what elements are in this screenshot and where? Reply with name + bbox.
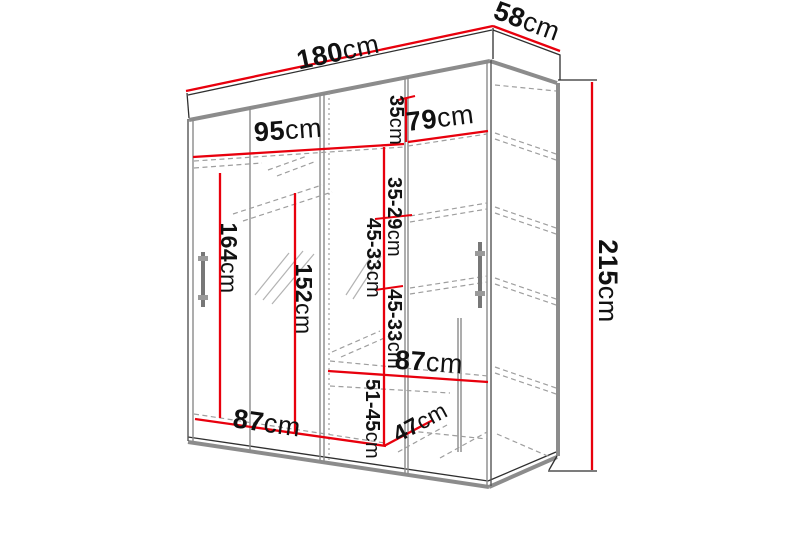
- top-shelf-second-line: [194, 163, 262, 168]
- side-shelf2-b: [495, 213, 556, 234]
- label-middle-shelf-width: 87cm: [394, 345, 464, 380]
- label-shelf-gap-upper: 35-29cm: [383, 177, 405, 257]
- label-mirror-height: 152cm: [291, 263, 317, 334]
- side-shelf3-b: [495, 284, 556, 305]
- label-bottom-left-width: 87cm: [231, 403, 303, 442]
- top-shelf-depth-b: [277, 162, 314, 176]
- right-door-handle: [475, 242, 485, 308]
- shelf4-front-b: [330, 386, 450, 393]
- side-shelf1-a: [495, 133, 556, 154]
- label-total-height: 215cm: [593, 239, 623, 323]
- dim-line-left-width: [193, 144, 404, 157]
- label-shelf-gap-lower: 51-45cm: [361, 379, 383, 459]
- shelf2-front-a: [410, 203, 487, 216]
- front-bottom-edge: [188, 442, 489, 487]
- side-floor: [497, 434, 550, 457]
- label-hanging-height: 164cm: [216, 222, 242, 293]
- shelf2-front-b: [410, 209, 487, 222]
- side-shelf4-a: [495, 367, 556, 388]
- label-total-width: 180cm: [294, 29, 382, 76]
- right-handle-nub-bottom: [475, 291, 485, 296]
- top-shelf-depth-a: [268, 156, 307, 170]
- wardrobe-dimension-diagram: 180cm 58cm 215cm 95cm 79cm 35cm 35-29cm …: [0, 0, 800, 533]
- side-shelf4-b: [495, 373, 556, 394]
- label-interior-depth: 47cm: [388, 397, 451, 447]
- label-right-width: 79cm: [404, 99, 475, 137]
- floor-depth-b: [440, 432, 487, 458]
- label-left-width: 95cm: [253, 113, 323, 148]
- left-door-handle: [198, 252, 208, 307]
- label-shelf-gap-middle-1: 45-33cm: [362, 218, 384, 298]
- product-dimension-image: 180cm 58cm 215cm 95cm 79cm 35cm 35-29cm …: [0, 0, 800, 533]
- side-bottom-edge: [489, 457, 557, 487]
- shelf4-depth-b: [341, 336, 389, 357]
- dimension-labels: 180cm 58cm 215cm 95cm 79cm 35cm 35-29cm …: [216, 0, 623, 459]
- rod-depth-b: [243, 192, 332, 221]
- side-shelf2-a: [495, 207, 556, 228]
- side-top-board: [495, 85, 556, 91]
- side-shelf3-a: [495, 278, 556, 299]
- right-handle-nub-top: [475, 251, 485, 256]
- shelf4-depth-a: [332, 331, 380, 352]
- side-bottom-inner-edge: [488, 452, 556, 481]
- top-face-left-edge: [187, 93, 189, 118]
- left-handle-nub-top: [198, 256, 208, 261]
- left-handle-nub-bottom: [198, 295, 208, 300]
- front-bottom-inner-edge: [188, 437, 488, 481]
- side-shelf1-b: [495, 139, 556, 160]
- label-top-shelf-height: 35cm: [385, 95, 407, 145]
- side-top-edge: [490, 61, 557, 83]
- shelf3-front-a: [410, 276, 487, 288]
